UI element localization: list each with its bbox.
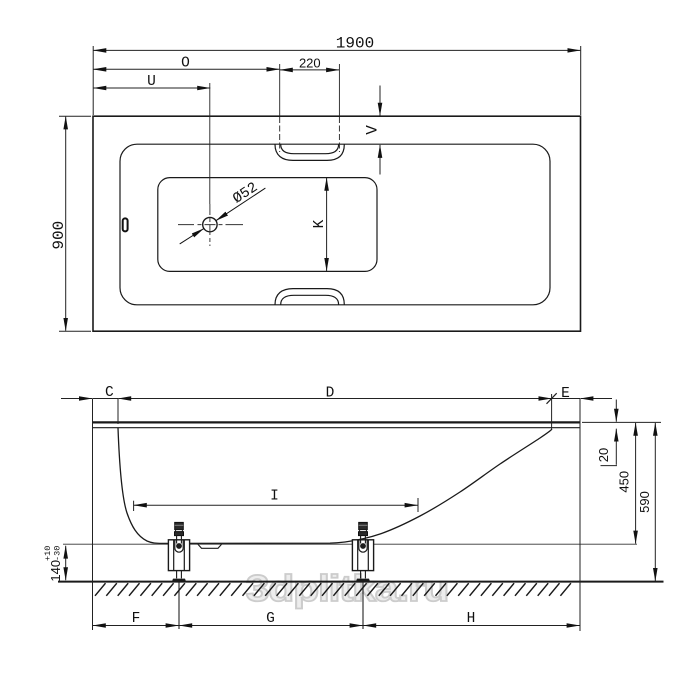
svg-text:F: F <box>132 611 141 627</box>
svg-text:O: O <box>181 55 190 71</box>
svg-text:140: 140 <box>48 560 63 582</box>
svg-text:E: E <box>561 386 570 402</box>
svg-text:U: U <box>147 74 156 90</box>
svg-text:220: 220 <box>299 55 321 70</box>
svg-text:G: G <box>266 611 275 627</box>
svg-text:590: 590 <box>637 491 652 513</box>
svg-text:-30: -30 <box>53 546 63 561</box>
svg-text:20: 20 <box>596 448 611 462</box>
svg-text:D: D <box>326 386 335 402</box>
svg-text:H: H <box>467 611 476 627</box>
svg-text:K: K <box>312 219 328 228</box>
svg-text:I: I <box>270 489 279 505</box>
svg-text:C: C <box>105 385 114 401</box>
svg-text:900: 900 <box>50 221 68 250</box>
svg-text:450: 450 <box>617 471 632 493</box>
svg-text:V: V <box>364 125 382 135</box>
svg-text:+10: +10 <box>43 546 53 561</box>
svg-text:1900: 1900 <box>336 35 374 53</box>
